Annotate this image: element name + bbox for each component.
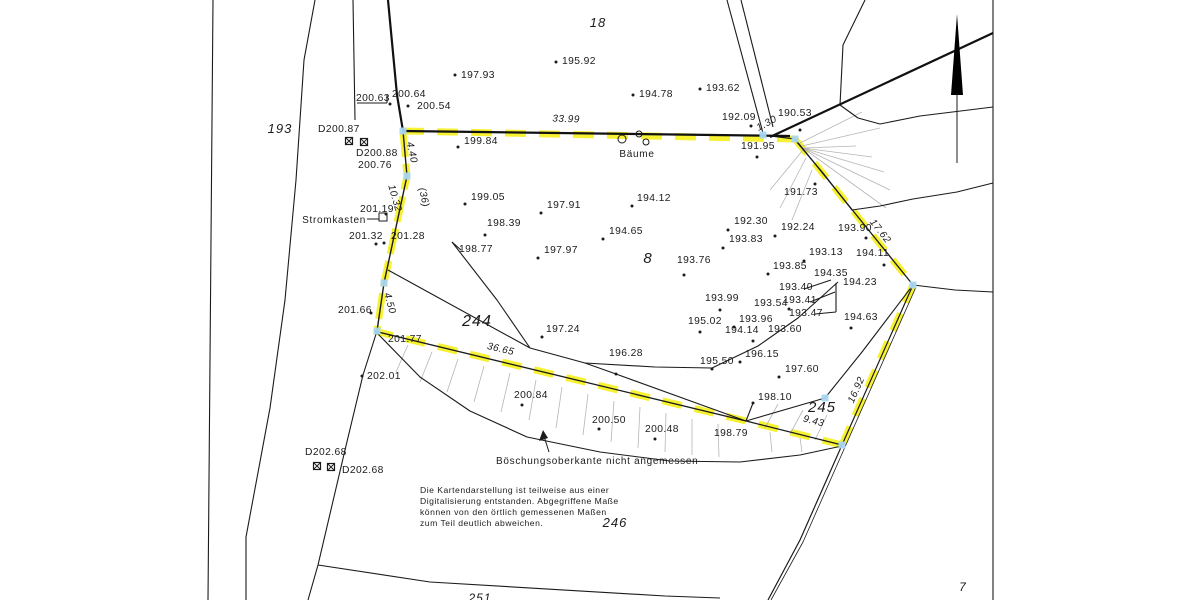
elevation-label: 193.99 (705, 293, 739, 304)
elevation-label: 194.63 (844, 312, 878, 323)
elevation-dot (739, 361, 742, 364)
note-line: Digitalisierung entstanden. Abgegriffene… (420, 496, 619, 506)
stromkasten-label: Stromkasten (302, 215, 366, 226)
elevation-dot (407, 105, 410, 108)
dimension-label: 36.65 (486, 341, 515, 358)
elevation-label: 200.64 (392, 89, 426, 100)
parcel-number: 245 (807, 399, 836, 416)
boundary-stone-icon (328, 464, 335, 471)
dimension-label: 9.43 (802, 414, 825, 430)
elevation-label: 193.13 (809, 247, 843, 258)
elevation-dot (767, 273, 770, 276)
elevation-dot (722, 247, 725, 250)
elevation-label: 194.23 (843, 277, 877, 288)
survey-vertex-marker (910, 282, 917, 289)
elevation-dot (541, 336, 544, 339)
elevation-label: D200.87 (318, 124, 360, 135)
elevation-dot (632, 94, 635, 97)
elevation-label: 198.77 (459, 244, 493, 255)
elevation-dot (711, 368, 714, 371)
elevation-label: 197.91 (547, 200, 581, 211)
elevation-label: 198.10 (758, 392, 792, 403)
slope-note-label: Böschungsoberkante nicht angemessen (496, 456, 698, 467)
note-line: Die Kartendarstellung ist teilweise aus … (420, 485, 609, 495)
elevation-label: 196.28 (609, 348, 643, 359)
elevation-label: 193.62 (706, 83, 740, 94)
elevation-label: 200.63 (356, 93, 390, 104)
elevation-dot (375, 243, 378, 246)
elevation-label: 197.93 (461, 70, 495, 81)
elevation-label: 195.02 (688, 316, 722, 327)
elevation-dot (774, 235, 777, 238)
elevation-dot (865, 237, 868, 240)
elevation-label: 198.79 (714, 428, 748, 439)
elevation-label: 193.83 (729, 234, 763, 245)
elevation-dot (383, 242, 386, 245)
elevation-dot (457, 146, 460, 149)
elevation-label: 193.90 (838, 223, 872, 234)
baeume-label: Bäume (619, 149, 654, 160)
parcel-number: 251 (467, 591, 491, 600)
elevation-label: 193.40 (779, 282, 813, 293)
survey-vertex-marker (381, 280, 388, 287)
elevation-label: 199.84 (464, 136, 498, 147)
elevation-dot (464, 203, 467, 206)
elevation-dot (598, 428, 601, 431)
elevation-label: 196.15 (745, 349, 779, 360)
elevation-dot (484, 234, 487, 237)
boundary-stone-icon (314, 463, 321, 470)
elevation-dot (555, 61, 558, 64)
elevation-label: 192.09 (722, 112, 756, 123)
elevation-label: 200.48 (645, 424, 679, 435)
elevation-label: 194.11 (856, 248, 889, 259)
elevation-dot (727, 229, 730, 232)
map-disclaimer-note: Die Kartendarstellung ist teilweise aus … (420, 485, 619, 528)
elevation-label: 194.65 (609, 226, 643, 237)
elevation-label: 193.85 (773, 261, 807, 272)
elevation-label: 200.50 (592, 415, 626, 426)
elevation-label: 197.60 (785, 364, 819, 375)
elevation-label: 194.78 (639, 89, 673, 100)
elevation-dot (799, 129, 802, 132)
parcel-number: 8 (643, 250, 652, 267)
main-boundary-lines (388, 0, 993, 137)
elevation-dot (850, 327, 853, 330)
elevation-label: 201.19 (360, 204, 394, 215)
elevation-label: 201.32 (349, 231, 383, 242)
survey-vertex-marker (400, 128, 407, 135)
elevation-label: 195.50 (700, 356, 734, 367)
elevation-label: 199.05 (471, 192, 505, 203)
note-line: zum Teil deutlich abweichen. (420, 518, 543, 528)
elevation-label: 201.77 (388, 334, 422, 345)
elevation-dot (454, 74, 457, 77)
elevation-label: D202.68 (305, 447, 347, 458)
elevation-label: 191.73 (784, 187, 818, 198)
elevation-dot (389, 103, 392, 106)
site-plan-page: 197.93195.92194.78193.62192.09190.53191.… (0, 0, 1200, 600)
elevation-label: 198.39 (487, 218, 521, 229)
elevation-label: 200.76 (358, 160, 392, 171)
elevation-label: 191.95 (741, 141, 775, 152)
elevation-label: D202.68 (342, 465, 384, 476)
survey-vertex-marker (374, 328, 381, 335)
elevation-dot (615, 373, 618, 376)
elevation-label: 201.28 (391, 231, 425, 242)
elevation-dot (683, 274, 686, 277)
elevation-label: 190.53 (778, 108, 812, 119)
site-plan-map: 197.93195.92194.78193.62192.09190.53191.… (0, 0, 1200, 600)
elevation-dot (602, 238, 605, 241)
elevation-dot (521, 404, 524, 407)
tree-circle-icon (643, 139, 649, 145)
elevation-dot (719, 309, 722, 312)
elevation-label: 197.24 (546, 324, 580, 335)
elevation-dot (814, 183, 817, 186)
elevation-label: 197.97 (544, 245, 578, 256)
elevation-label: 202.01 (367, 371, 401, 382)
elevation-label: 201.66 (338, 305, 372, 316)
survey-vertex-marker (792, 136, 799, 143)
elevation-dot (540, 212, 543, 215)
elevation-label: 195.92 (562, 56, 596, 67)
elevation-dot (752, 402, 755, 405)
elevation-dot (699, 88, 702, 91)
parcel-number: 7 (959, 580, 967, 594)
parcel-number: 18 (590, 15, 606, 30)
elevation-label: 193.47 (789, 308, 823, 319)
elevation-label: 194.14 (725, 325, 759, 336)
boundary-stone-icon (361, 139, 368, 146)
elevation-dot (752, 340, 755, 343)
elevation-label: 200.54 (417, 101, 451, 112)
north-arrow-icon (951, 14, 963, 163)
elevation-dot (361, 375, 364, 378)
boundary-stone-icons (314, 138, 368, 471)
dimension-label: (36) (416, 187, 431, 209)
elevation-label: 193.54 (754, 298, 788, 309)
elevation-label: 200.84 (514, 390, 548, 401)
elevation-label: 192.30 (734, 216, 768, 227)
elevation-label: D200.88 (356, 148, 398, 159)
boundary-stone-icon (346, 138, 353, 145)
survey-vertex-marker (404, 173, 411, 180)
parcel-number: 193 (268, 121, 293, 136)
elevation-dot (883, 264, 886, 267)
parcel-number: 246 (602, 515, 628, 530)
note-line: können von den örtlich gemessenen Maßen (420, 507, 607, 517)
elevation-label: 194.12 (637, 193, 671, 204)
elevation-label: 193.41 (783, 295, 817, 306)
dimension-label: 4.50 (381, 292, 397, 316)
elevation-dot (699, 331, 702, 334)
elevation-label: 193.76 (677, 255, 711, 266)
elevation-dot (756, 156, 759, 159)
elevation-dot (778, 376, 781, 379)
parcel-number: 244 (461, 313, 492, 330)
elevation-dot (537, 257, 540, 260)
elevation-dot (750, 125, 753, 128)
elevation-dot (654, 438, 657, 441)
dimension-label: 33.99 (552, 114, 580, 126)
elevation-dot (631, 205, 634, 208)
elevation-label: 192.24 (781, 222, 815, 233)
elevation-label: 193.60 (768, 324, 802, 335)
survey-vertex-marker (839, 442, 846, 449)
